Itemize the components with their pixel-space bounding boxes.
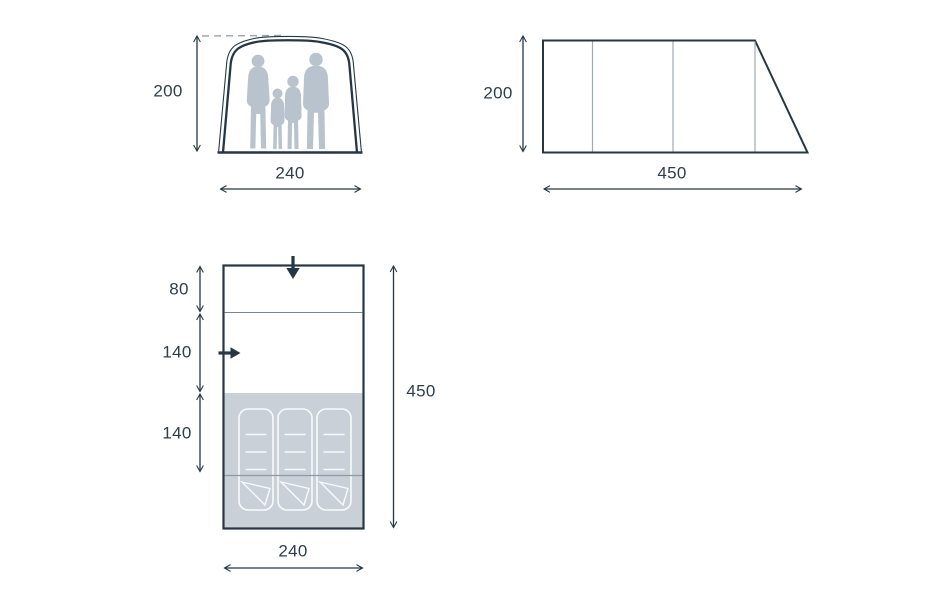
side-profile-outline <box>543 41 808 153</box>
plan-depth-140b-label: 140 <box>162 425 191 442</box>
peak-reference-dashed-line <box>202 36 283 37</box>
plan-depth-140a-label: 140 <box>162 344 191 361</box>
front-entrance-down-arrow-icon <box>286 256 299 279</box>
plan-depth-80-label: 80 <box>169 281 189 298</box>
sleeping-area-fill <box>225 393 363 528</box>
side-height-label: 200 <box>483 85 512 102</box>
side-entrance-right-arrow-icon <box>219 347 241 358</box>
family-silhouette-icon <box>247 53 329 149</box>
front-width-label: 240 <box>275 165 304 182</box>
tent-dimension-diagram: 200 240 200 450 80 140 140 450 240 <box>0 0 950 600</box>
plan-width-label: 240 <box>278 543 307 560</box>
side-length-label: 450 <box>657 165 686 182</box>
front-height-label: 200 <box>153 83 182 100</box>
diagram-linework <box>0 0 950 600</box>
plan-total-depth-label: 450 <box>406 383 435 400</box>
floor-plan <box>200 256 394 568</box>
